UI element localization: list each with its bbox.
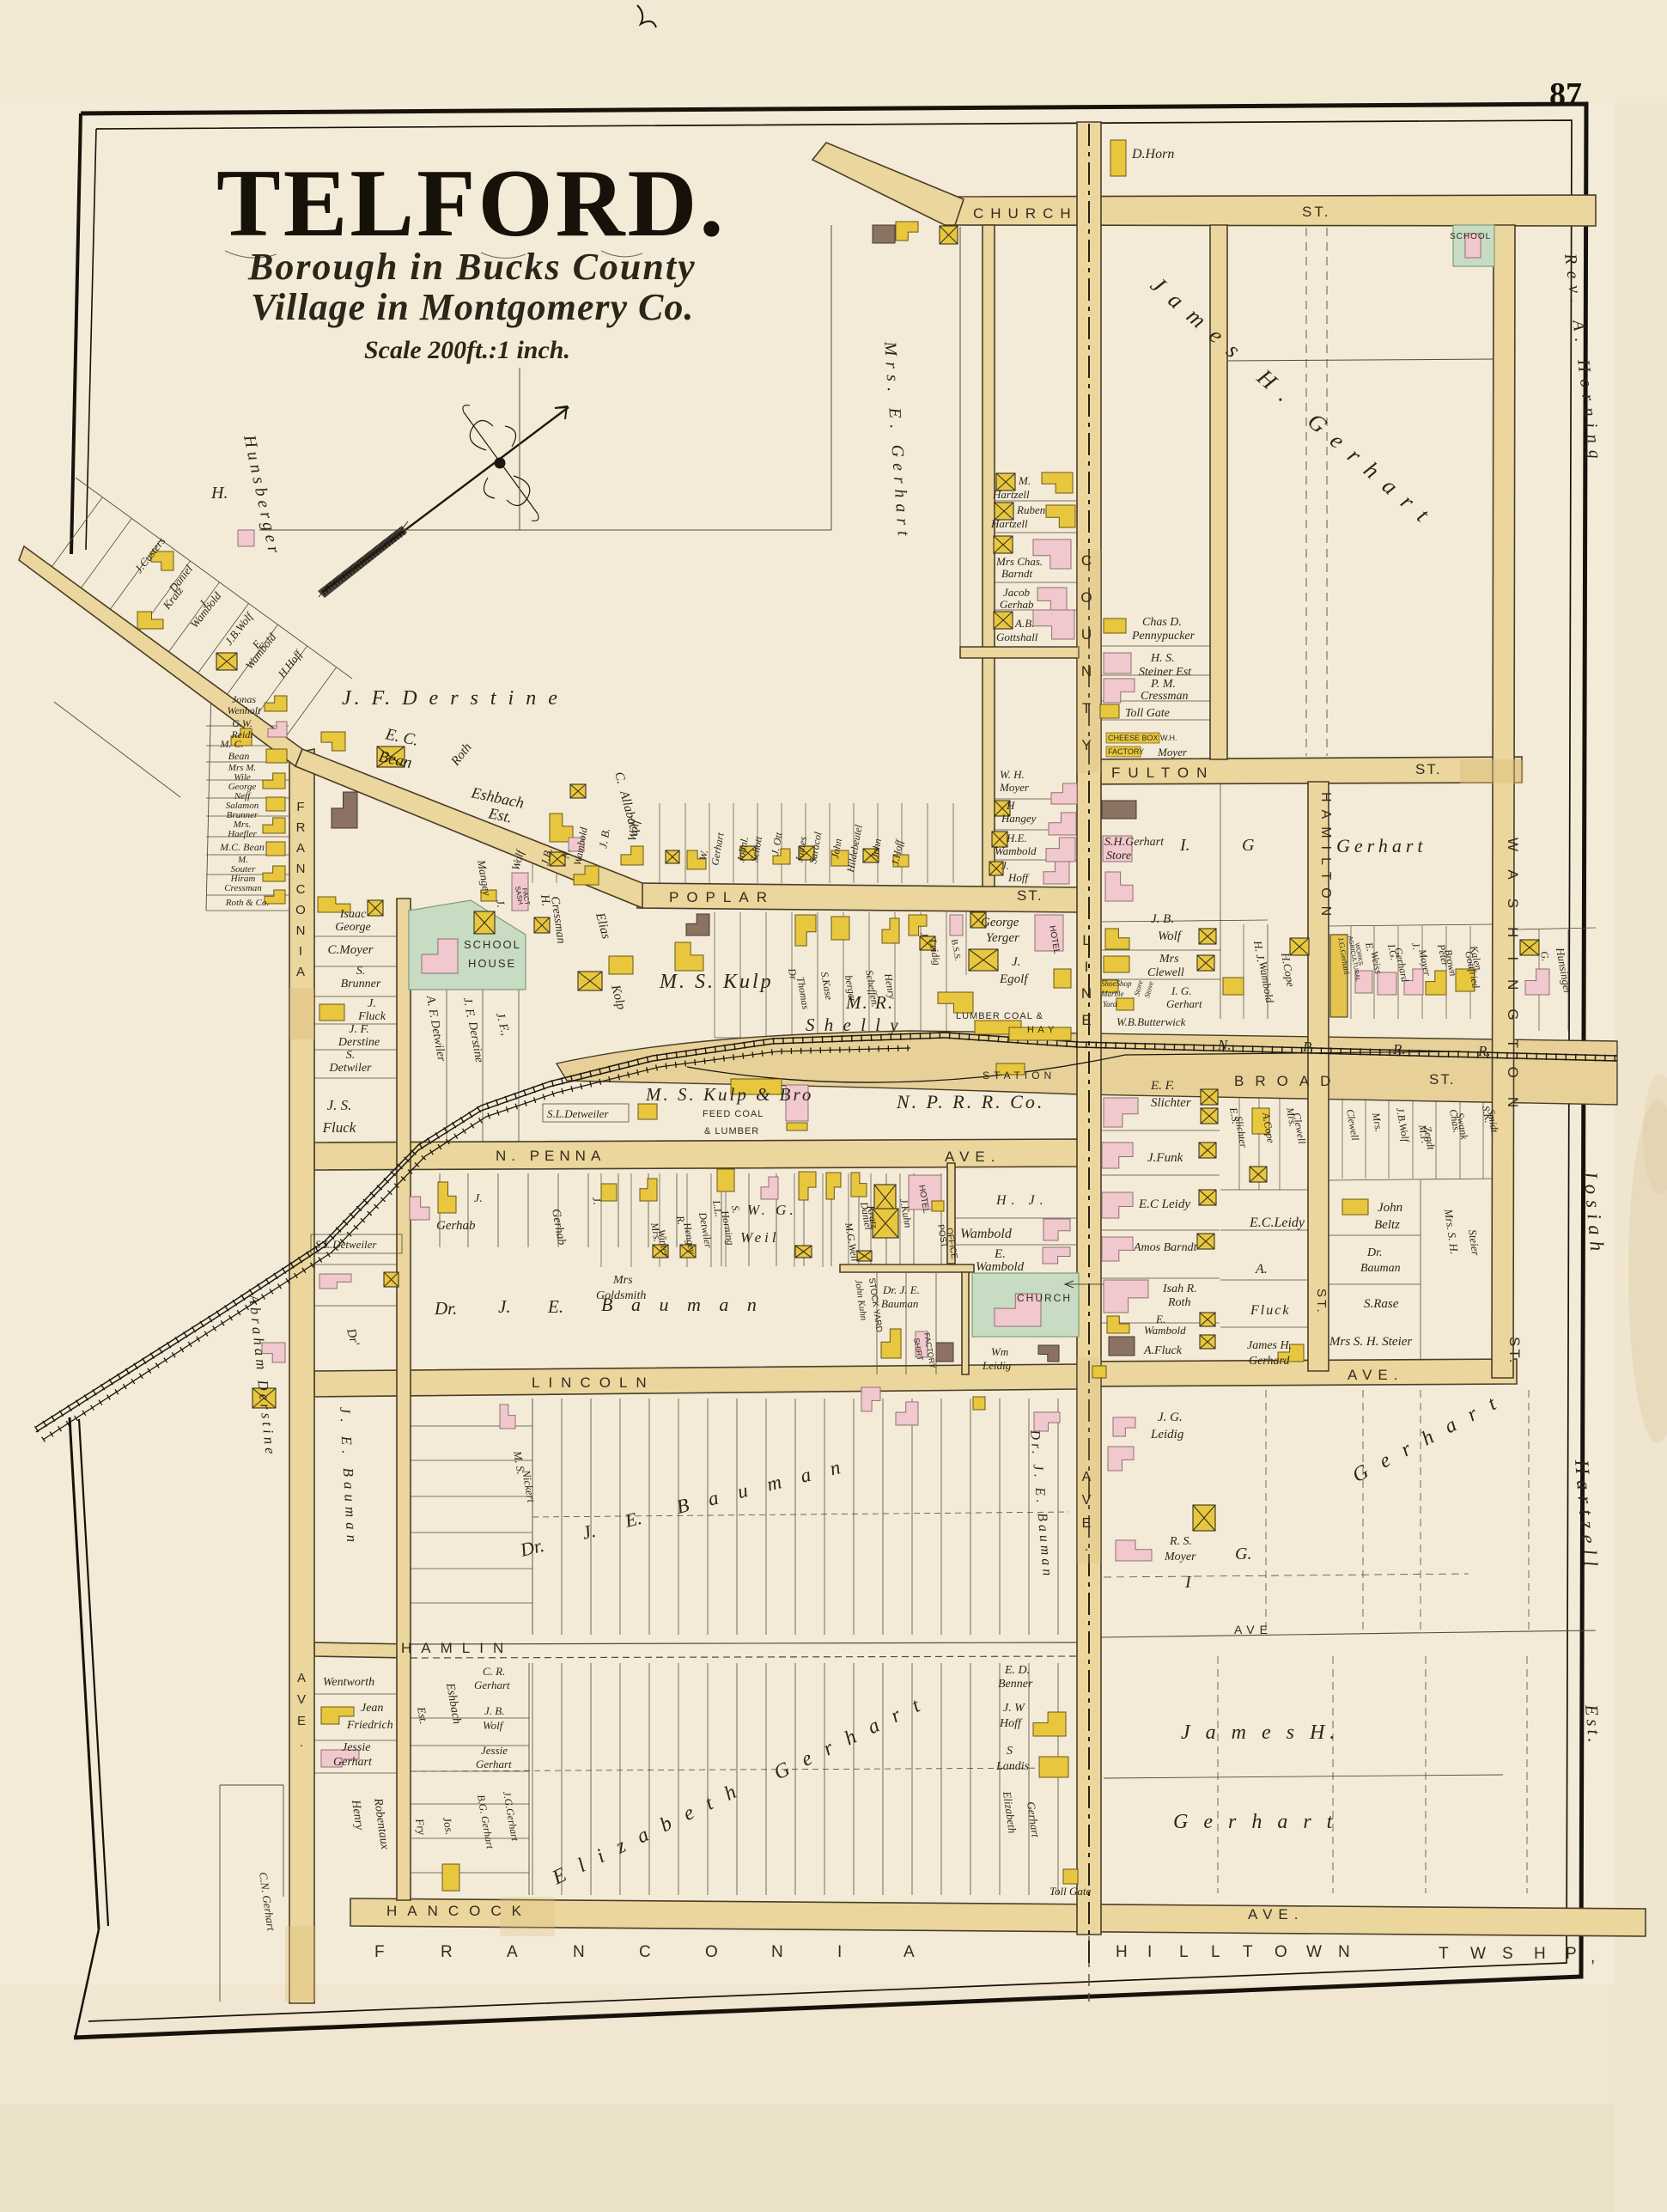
svg-text:R: R [441,1943,461,1961]
svg-text:I.: I. [1179,836,1190,855]
svg-text:J.Funk: J.Funk [1147,1151,1183,1165]
svg-text:Bean: Bean [228,750,250,762]
svg-text:J. B.: J. B. [484,1704,504,1717]
svg-text:J. B.: J. B. [1151,912,1174,926]
svg-text:R. S.: R. S. [1169,1535,1192,1548]
svg-text:WASHINGTON: WASHINGTON [1505,838,1521,1126]
svg-text:HANCOCK: HANCOCK [386,1903,532,1919]
svg-text:I: I [1184,1573,1192,1592]
svg-text:& LUMBER: & LUMBER [704,1126,759,1136]
svg-text:E.C.Leidy: E.C.Leidy [1249,1216,1305,1230]
svg-text:E.C Leidy: E.C Leidy [1138,1197,1190,1211]
svg-text:HAMLIN: HAMLIN [401,1640,513,1656]
svg-text:Friedrich: Friedrich [346,1719,393,1732]
svg-text:Hangey: Hangey [1001,812,1037,825]
svg-text:C: C [639,1943,660,1961]
svg-text:CHURCH: CHURCH [973,205,1078,222]
svg-text:E.: E. [994,1247,1006,1261]
svg-text:STATION: STATION [983,1069,1056,1082]
svg-text:M. S. Kulp: M. S. Kulp [659,971,774,993]
svg-text:Toll Gate: Toll Gate [1049,1885,1092,1898]
svg-text:Wentworth: Wentworth [323,1676,374,1689]
svg-text:S: S [1007,1745,1013,1758]
svg-text:S: S [1502,1945,1522,1963]
svg-text:R.: R. [1477,1043,1491,1059]
svg-text:FULTON: FULTON [1111,765,1214,781]
svg-text:Scale 200ft.:1 inch.: Scale 200ft.:1 inch. [364,336,570,364]
svg-text:Gerhard: Gerhard [1249,1355,1290,1368]
svg-text:Landis: Landis [995,1760,1030,1773]
svg-text:H. J.: H. J. [995,1193,1049,1208]
svg-text:N: N [771,1943,792,1961]
svg-text:Wambold: Wambold [1144,1324,1186,1337]
svg-text:H: H [1116,1943,1136,1961]
svg-text:Moyer: Moyer [1164,1551,1196,1563]
svg-text:ST.: ST. [1302,204,1331,220]
svg-text:Toll Gate: Toll Gate [1125,707,1170,720]
svg-text:N.: N. [559,848,573,860]
svg-text:E. D.: E. D. [1004,1664,1030,1677]
svg-text:Leidig: Leidig [1150,1428,1184,1441]
svg-text:P: P [1566,1945,1585,1963]
svg-text:TELFORD.: TELFORD. [216,150,726,257]
svg-text:John: John [1378,1201,1402,1215]
svg-text:N. P. R. R. Co.: N. P. R. R. Co. [896,1091,1044,1112]
svg-text:Wenholt: Wenholt [228,704,262,716]
svg-text:L: L [1179,1943,1197,1961]
svg-text:Marble: Marble [1100,990,1124,998]
svg-text:HAMILTON: HAMILTON [1318,792,1333,923]
svg-text:Bauman: Bauman [1360,1262,1401,1275]
svg-text:M.: M. [1018,474,1031,487]
svg-text:Jean: Jean [361,1702,383,1715]
svg-text:M. S. Kulp & Bro: M. S. Kulp & Bro [645,1084,813,1105]
svg-text:Haefler: Haefler [227,829,257,839]
svg-text:Slichter: Slichter [1151,1096,1191,1110]
svg-text:T: T [1439,1945,1457,1963]
svg-text:P.: P. [1302,1039,1313,1055]
svg-text:ST.: ST. [1506,1337,1523,1366]
svg-text:Village in Montgomery Co.: Village in Montgomery Co. [251,286,694,328]
svg-text:Jessie: Jessie [481,1744,508,1757]
svg-text:Steiner Est: Steiner Est [1139,666,1192,679]
svg-text:M.C. Bean: M.C. Bean [219,841,265,853]
svg-text:A: A [903,1943,923,1961]
svg-text:ST.: ST. [1314,1289,1329,1315]
svg-text:I: I [1147,1943,1160,1961]
svg-text:J.: J. [474,1192,483,1205]
svg-text:Cressman: Cressman [1141,690,1189,703]
svg-text:W: W [1306,1943,1330,1961]
svg-text:Jonas: Jonas [232,693,256,705]
svg-text:A: A [507,1943,526,1961]
svg-text:Gerhart: Gerhart [1166,997,1202,1010]
svg-text:Chas D.: Chas D. [1142,616,1182,629]
svg-text:F: F [374,1943,393,1961]
svg-text:G.W.: G.W. [232,717,252,729]
svg-text:FEED COAL: FEED COAL [703,1109,764,1119]
svg-text:Jacob: Jacob [1003,586,1031,599]
svg-text:CHURCH: CHURCH [1017,1292,1072,1304]
svg-text:Fluck: Fluck [1250,1303,1290,1318]
svg-text:G: G [1242,836,1255,855]
svg-text:AVE: AVE [1234,1623,1273,1636]
svg-text:Yerger: Yerger [986,931,1019,945]
svg-text:,: , [1591,1948,1603,1966]
svg-text:J. F. D e r s t i n e: J. F. D e r s t i n e [342,687,561,710]
svg-text:J.: J. [1012,955,1020,969]
svg-text:R.: R. [1392,1041,1406,1057]
svg-text:Hartzell: Hartzell [990,517,1028,530]
svg-text:HOUSE: HOUSE [468,957,516,970]
svg-text:O: O [705,1943,727,1961]
svg-text:Roth: Roth [1167,1296,1190,1309]
svg-text:Hartzell: Hartzell [992,488,1030,501]
svg-text:LINCOLN: LINCOLN [532,1374,655,1391]
svg-text:Gerhart: Gerhart [1336,835,1427,856]
svg-text:Hoff: Hoff [999,1717,1023,1730]
svg-text:Mrs: Mrs [612,1274,633,1287]
svg-text:M. C.: M. C. [220,738,244,750]
svg-text:Isah R.: Isah R. [1162,1283,1197,1295]
svg-text:Gerhart: Gerhart [476,1758,512,1770]
svg-text:George: George [335,921,370,934]
svg-text:ShoeShop: ShoeShop [1101,979,1132,988]
svg-text:Gottshall: Gottshall [996,631,1038,643]
svg-text:Moyer: Moyer [999,781,1030,794]
svg-text:Wm: Wm [991,1345,1008,1358]
svg-text:W.B.Butterwick: W.B.Butterwick [1116,1015,1186,1028]
svg-text:H A Y: H A Y [1027,1025,1055,1035]
svg-text:87: 87 [1549,76,1582,113]
svg-text:Mrs S. H. Steier: Mrs S. H. Steier [1329,1335,1412,1349]
svg-text:ST.: ST. [1429,1071,1456,1088]
svg-text:AVE.: AVE. [1248,1906,1304,1923]
svg-text:George: George [981,916,1019,929]
svg-text:SCHOOL: SCHOOL [1450,232,1491,241]
svg-text:Yard: Yard [1103,1000,1117,1009]
svg-text:S.: S. [346,1049,356,1062]
svg-text:D.Horn: D.Horn [1131,147,1174,161]
svg-text:S.H.Gerhart: S.H.Gerhart [1104,836,1165,849]
svg-text:Weil: Weil [740,1229,780,1246]
svg-text:Fluck: Fluck [357,1010,386,1023]
svg-text:BROAD: BROAD [1234,1073,1342,1089]
svg-text:Gerhart: Gerhart [333,1756,373,1769]
svg-text:Est.: Est. [1581,1703,1605,1746]
svg-text:E.: E. [547,1296,563,1317]
svg-text:Barndt: Barndt [1001,567,1033,580]
svg-text:I. G.: I. G. [1171,984,1191,997]
svg-text:W. H.: W. H. [1000,768,1025,781]
svg-text:Dr. J. E.: Dr. J. E. [882,1283,920,1296]
svg-text:Store: Store [1106,850,1131,862]
svg-text:H.E.: H.E. [1006,832,1027,844]
svg-text:Leidig: Leidig [982,1359,1012,1372]
svg-text:J.: J. [1001,859,1009,872]
svg-text:Gerhab: Gerhab [436,1219,476,1233]
svg-text:Hoff: Hoff [1007,871,1031,884]
svg-text:J. W: J. W [1003,1702,1025,1715]
svg-text:Egolf: Egolf [999,972,1029,986]
svg-text:Wolf: Wolf [1158,929,1183,943]
svg-text:A.B.: A.B. [1014,617,1034,630]
svg-text:Wolf: Wolf [483,1719,505,1732]
svg-text:Cressman: Cressman [224,883,262,893]
svg-text:SCHOOL: SCHOOL [464,938,521,951]
svg-text:N. PENNA: N. PENNA [496,1148,605,1164]
svg-text:Gerhab: Gerhab [1000,598,1034,611]
svg-text:A.: A. [1255,1262,1268,1277]
svg-text:Bauman: Bauman [881,1297,918,1310]
svg-text:W: W [1470,1945,1494,1963]
svg-text:N: N [573,1943,593,1961]
svg-text:G e r h a r t: G e r h a r t [1173,1811,1337,1833]
svg-text:G.: G. [1538,950,1552,962]
svg-text:Brunner: Brunner [341,978,381,990]
svg-text:Pennypucker: Pennypucker [1131,630,1195,643]
svg-text:ST.: ST. [1415,761,1442,777]
svg-text:G.: G. [1235,1545,1251,1563]
svg-text:I: I [837,1943,850,1961]
svg-text:S.L.Detweiler: S.L.Detweiler [547,1107,609,1120]
svg-text:Ruben: Ruben [1016,503,1045,516]
svg-text:S.L.Detweiler: S.L.Detweiler [315,1238,377,1251]
svg-text:Mrs: Mrs [1159,953,1179,966]
svg-text:Jessie: Jessie [342,1741,370,1754]
svg-text:Moyer: Moyer [1157,746,1188,759]
svg-text:J a m e s H.: J a m e s H. [1181,1721,1340,1744]
svg-text:FACTORY: FACTORY [1108,747,1144,756]
svg-text:Clewell: Clewell [1147,966,1184,979]
svg-text:Gerhart: Gerhart [474,1679,510,1691]
svg-text:W. G.: W. G. [747,1202,797,1218]
svg-text:Wambold: Wambold [960,1227,1013,1241]
svg-text:J. S.: J. S. [327,1097,352,1113]
svg-text:H.: H. [210,484,228,503]
svg-text:Derstine: Derstine [338,1036,380,1049]
svg-text:Benner: Benner [998,1678,1033,1691]
svg-text:Amos Barndt: Amos Barndt [1133,1241,1198,1254]
svg-text:CHEESE BOX W.H.: CHEESE BOX W.H. [1108,734,1177,742]
svg-text:Borough in Bucks County: Borough in Bucks County [247,246,697,288]
svg-text:Detwiler: Detwiler [329,1062,373,1075]
svg-text:ST.: ST. [1017,887,1043,904]
svg-text:H: H [1006,799,1015,812]
svg-text:S.: S. [356,965,366,978]
svg-text:A.Fluck: A.Fluck [1143,1344,1183,1357]
svg-text:H: H [1534,1945,1554,1963]
svg-text:W.: W. [697,849,710,861]
svg-text:Roth & Co.: Roth & Co. [225,898,269,908]
svg-text:Wambold: Wambold [976,1260,1025,1274]
svg-text:L: L [1211,1943,1229,1961]
svg-text:J. F.: J. F. [349,1023,368,1036]
svg-text:J.: J. [498,1296,511,1317]
svg-text:H. S.: H. S. [1150,652,1175,665]
svg-text:J. G.: J. G. [1158,1411,1183,1424]
svg-text:C.Moyer: C.Moyer [328,943,374,957]
svg-text:S.Rase: S.Rase [1364,1297,1399,1311]
svg-text:J.: J. [368,997,376,1010]
svg-text:C. R.: C. R. [483,1665,505,1678]
svg-text:Beltz: Beltz [1374,1218,1400,1232]
svg-text:AVE.: AVE. [945,1149,1001,1165]
svg-text:Wambold: Wambold [995,844,1037,857]
svg-text:Dr.: Dr. [434,1298,457,1319]
svg-text:P. M.: P. M. [1150,678,1176,691]
svg-text:AVE.: AVE. [1348,1367,1403,1383]
svg-text:LUMBER COAL &: LUMBER COAL & [956,1011,1043,1021]
svg-text:S h e l l y: S h e l l y [806,1015,901,1035]
svg-text:Isaac: Isaac [339,908,367,921]
svg-text:T: T [1243,1943,1262,1961]
svg-text:POPLAR: POPLAR [669,889,775,905]
svg-text:Dr.: Dr. [1366,1246,1383,1259]
svg-text:Fluck: Fluck [322,1119,356,1136]
svg-text:E. F.: E. F. [1150,1079,1175,1093]
svg-text:James H.: James H. [1247,1339,1292,1352]
svg-text:Goldsmith: Goldsmith [596,1289,646,1302]
svg-text:N.: N. [1217,1037,1232,1053]
svg-text:O: O [1275,1943,1296,1961]
svg-text:N: N [1338,1943,1359,1961]
svg-text:Mrs Chas.: Mrs Chas. [995,555,1043,568]
